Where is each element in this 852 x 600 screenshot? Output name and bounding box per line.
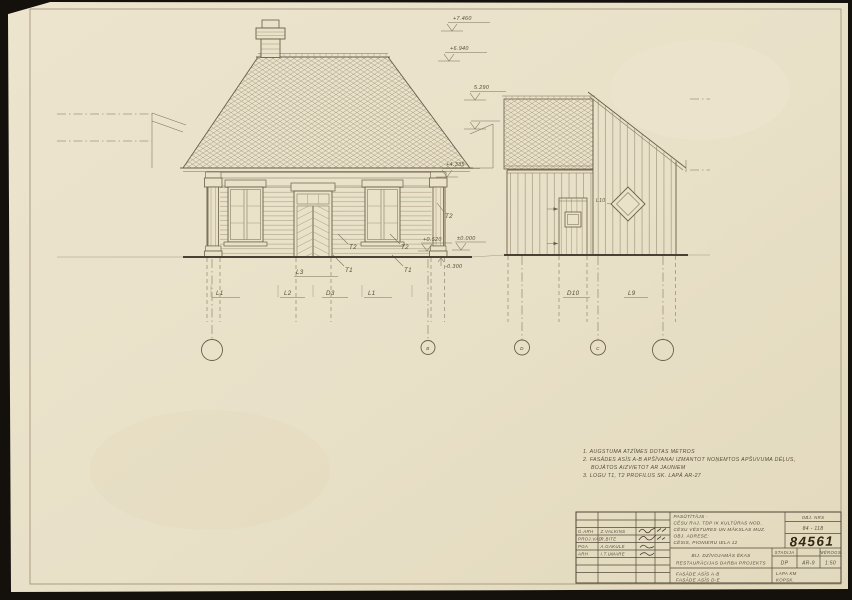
- project-line-2: RESTAURĀCIJAS DARBA PROJEKTS: [676, 560, 767, 566]
- svg-text:+0.520: +0.520: [423, 237, 442, 243]
- sig-name-1: Z.VALKINS: [600, 529, 626, 534]
- label-l10: L10: [596, 198, 605, 204]
- window-1: [224, 180, 267, 246]
- client-line-3: CĒSU VĒSTURES UN MĀKSLAS MUZ.: [674, 526, 766, 532]
- axis-letter-d: D: [520, 346, 524, 351]
- sig-role-4: ARH: [577, 552, 589, 557]
- label-t1-left: T1: [345, 267, 353, 274]
- label-t1-right: T1: [404, 267, 412, 274]
- entrance-door: [291, 183, 335, 268]
- lapa-label: LAPA KM: [776, 571, 797, 576]
- client-line-5: CĒSIS, PIONIERU IELA 12: [674, 539, 738, 545]
- obj-nr-value: 84 - 118: [803, 526, 824, 532]
- obj-nr-label: OBJ. NRS: [802, 515, 825, 520]
- svg-text:+6.940: +6.940: [450, 46, 469, 52]
- label-l2: L2: [284, 290, 292, 297]
- label-t2-right: T2: [401, 244, 409, 251]
- sig-role-2: PROJ.VAD: [578, 537, 602, 542]
- merogs-label: MĒROGS: [820, 550, 841, 555]
- sig-name-2: R.BITE: [601, 537, 617, 542]
- note-line-1: 1. AUGSTUMA ATZĪMES DOTAS METROS: [583, 448, 695, 455]
- svg-text:5.290: 5.290: [474, 85, 489, 91]
- fasade-line-2: FASĀDE ASĪS D-E: [676, 577, 721, 583]
- label-l9: L9: [628, 290, 636, 297]
- sig-role-1: G.ARH: [578, 529, 594, 534]
- merogs-value: 1:50: [825, 561, 836, 567]
- stadija-label: STADIJA: [775, 550, 795, 555]
- label-d10: D10: [567, 290, 580, 297]
- archive-stamp-number: 84561: [790, 534, 835, 550]
- client-line-1: PASŪTĪTĀJS -: [674, 513, 709, 519]
- sig-name-4: I.T.UMARE: [601, 552, 625, 557]
- sig-role-3: PGA: [578, 544, 588, 549]
- fasade-line-1: FASĀDE ASĪS A-B: [676, 571, 720, 577]
- label-l1b: L1: [368, 290, 376, 297]
- roof-band: [504, 99, 593, 169]
- svg-text:-0.300: -0.300: [445, 264, 462, 270]
- drawing-sheet: T2 T2 T1 T1 T2 L3 L1 L2 D3 L1: [0, 0, 852, 600]
- client-line-4: OBJ. ADRESE:: [674, 534, 710, 539]
- sheet-number: AR-9: [801, 561, 815, 567]
- label-l3: L3: [296, 269, 304, 276]
- label-t2-left: T2: [349, 244, 357, 251]
- svg-text:+4.335: +4.335: [446, 162, 465, 168]
- axis-letter-b: B: [426, 346, 429, 351]
- scanned-drawing-sheet: T2 T2 T1 T1 T2 L3 L1 L2 D3 L1: [0, 0, 852, 600]
- svg-text:+7.460: +7.460: [453, 16, 472, 22]
- svg-text:±0.000: ±0.000: [457, 236, 476, 242]
- note-line-3: BOJĀTOS AIZVIETOT AR JAUNIEM: [591, 464, 686, 471]
- stadija-value: DP: [781, 561, 789, 567]
- window-2: [361, 180, 404, 246]
- project-line-1: BIJ. DZĪVOJAMĀS ĒKAS: [691, 552, 751, 558]
- axis-letter-c: C: [596, 346, 600, 351]
- note-line-2: 2. FASĀDES ASĪS A-B APŠĪVANAI IZMANTOT N…: [582, 456, 796, 463]
- label-d3: D3: [326, 290, 335, 297]
- note-line-4: 3. LOGU T1, T2 PROFILUS SK. LAPĀ AR-27: [583, 472, 702, 479]
- paper-stain: [90, 410, 330, 530]
- label-t2-pilaster: T2: [445, 213, 453, 220]
- client-line-2: CĒSU RAJ. TDP IK KULTŪRAS NOD.: [674, 520, 763, 526]
- sig-name-3: A.GAKULE: [600, 544, 625, 549]
- kopsk-label: KOPSK.: [776, 578, 794, 583]
- paper-stain: [610, 40, 790, 140]
